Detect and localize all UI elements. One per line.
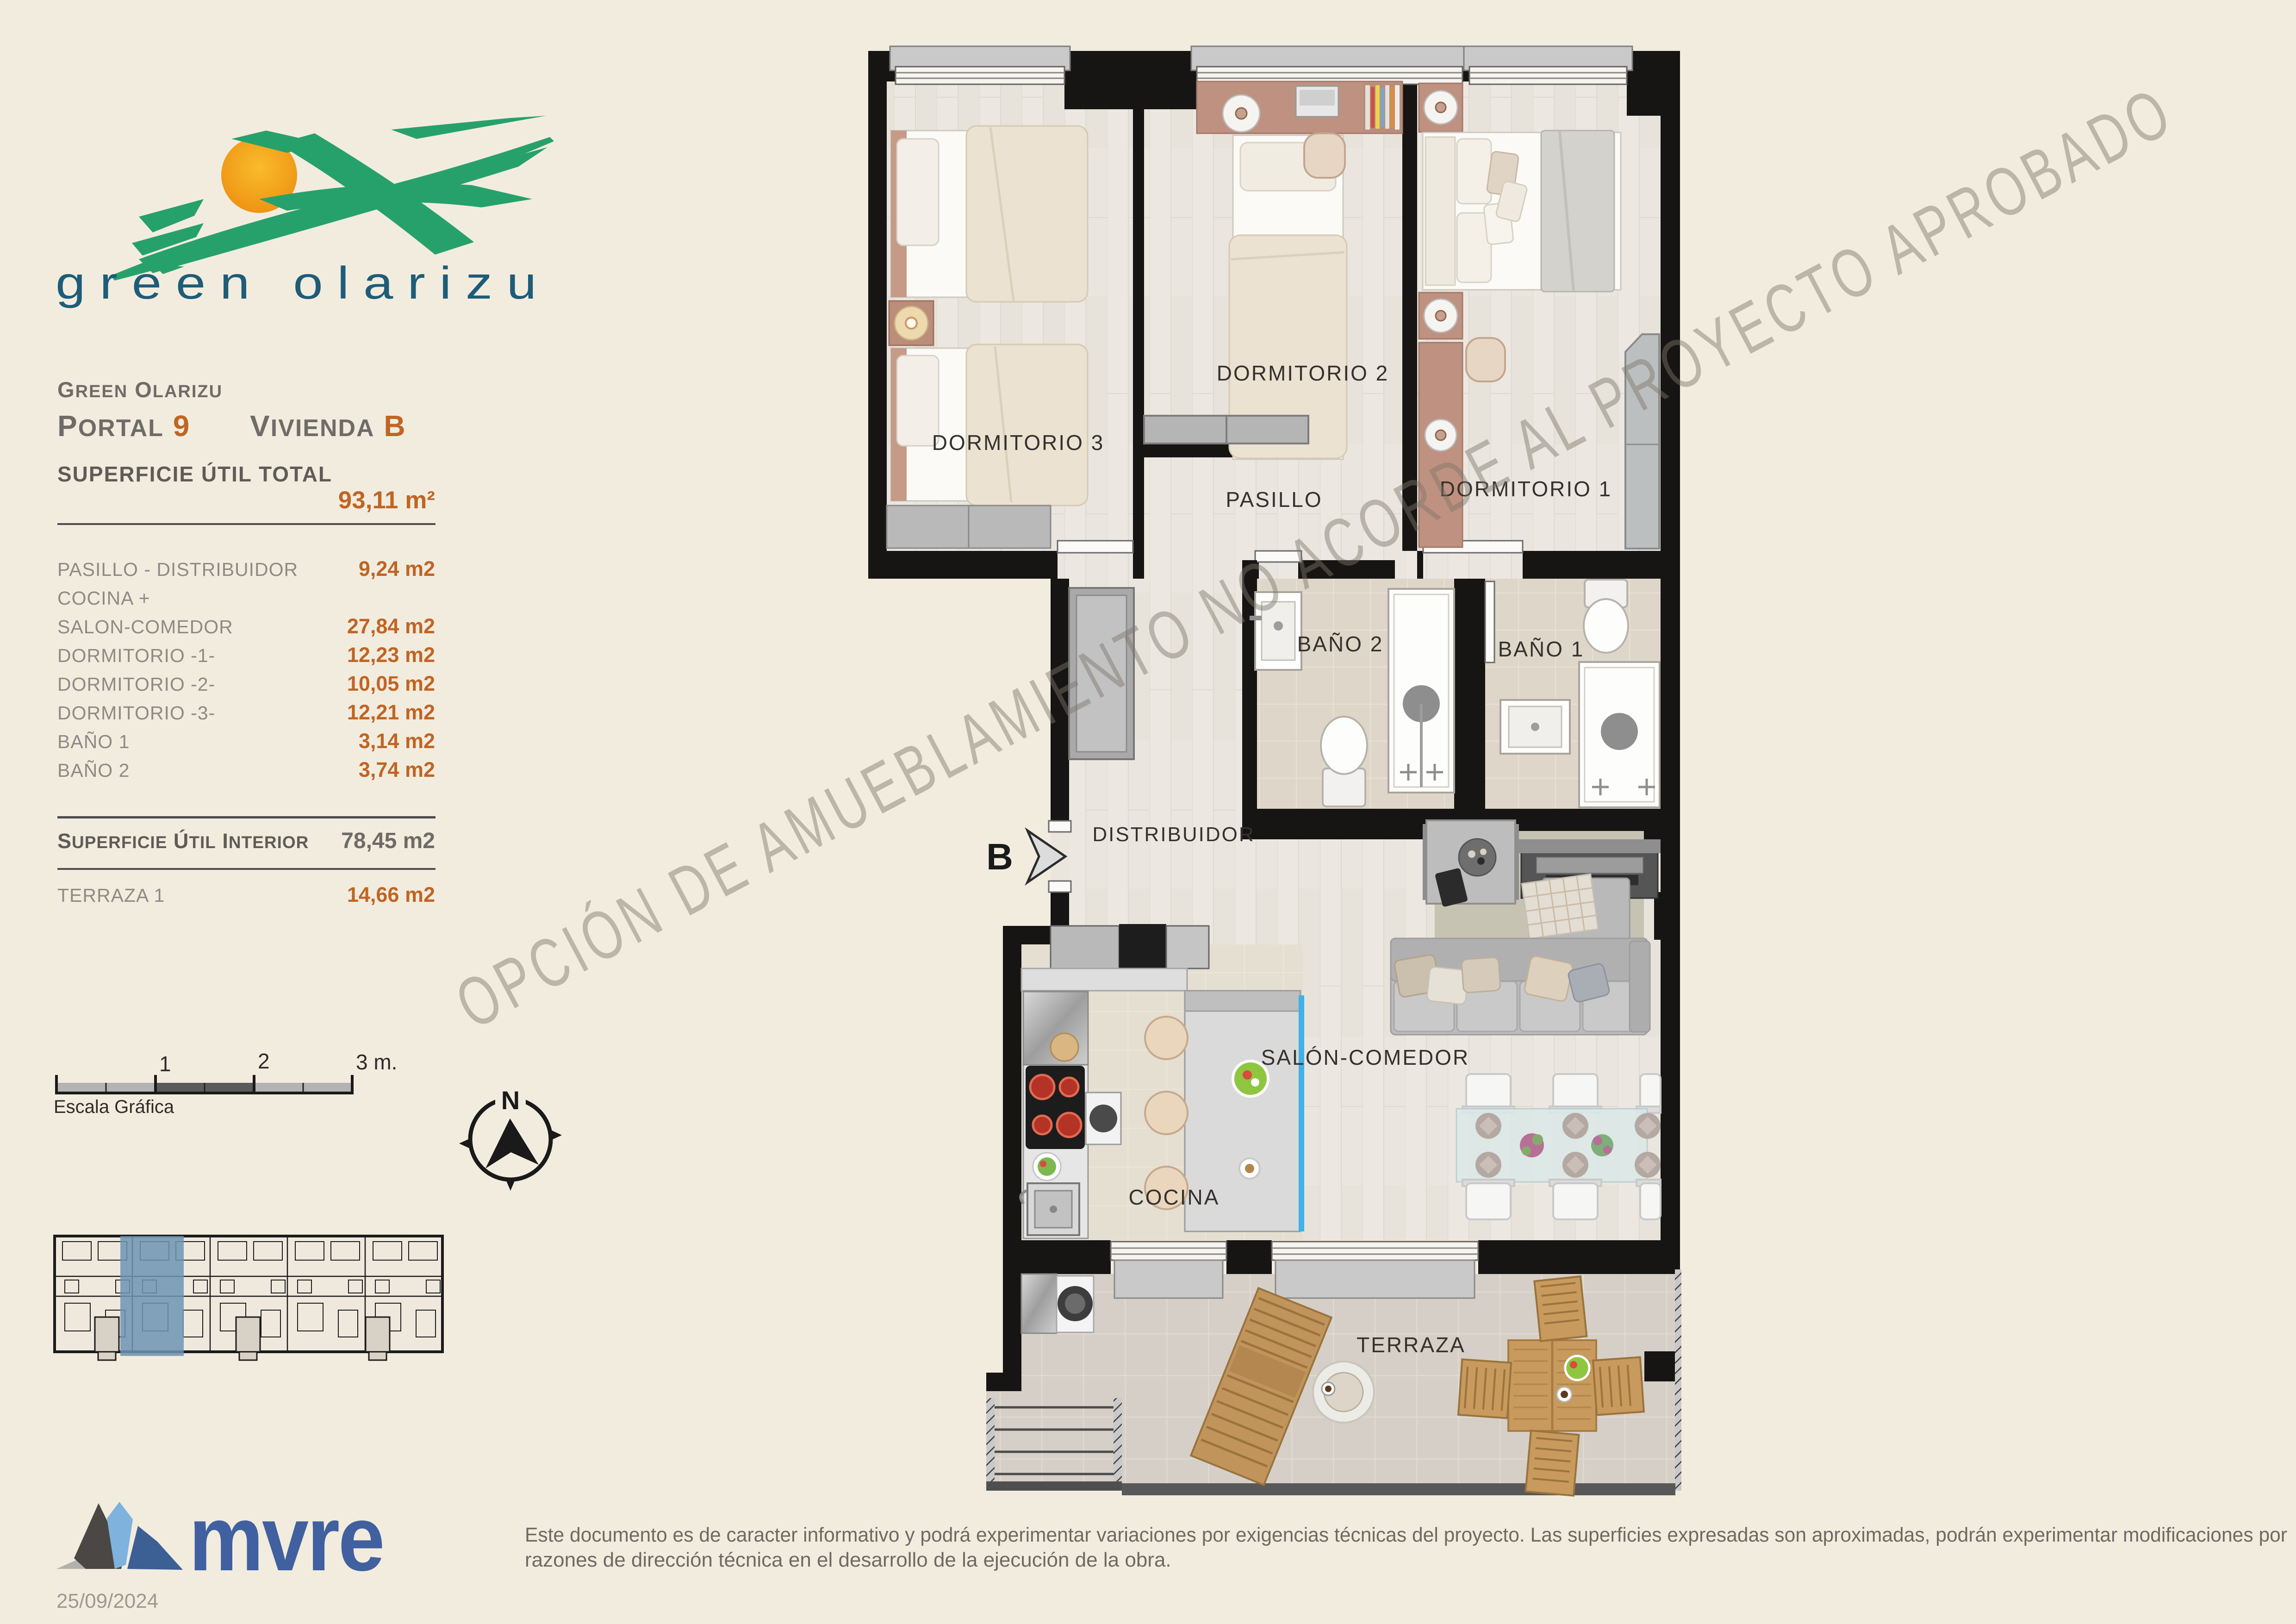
svg-text:BAÑO 2: BAÑO 2 — [57, 760, 130, 781]
svg-text:27,84 m2: 27,84 m2 — [347, 614, 435, 638]
svg-text:DORMITORIO -1-: DORMITORIO -1- — [57, 645, 215, 666]
svg-text:SUPERFICIE ÚTIL INTERIOR: SUPERFICIE ÚTIL INTERIOR — [57, 829, 309, 853]
svg-text:DORMITORIO -2-: DORMITORIO -2- — [57, 674, 215, 695]
svg-text:Escala Gráfica: Escala Gráfica — [54, 1097, 174, 1117]
svg-text:BAÑO 2: BAÑO 2 — [1297, 632, 1384, 656]
svg-text:25/09/2024: 25/09/2024 — [56, 1590, 158, 1612]
svg-text:N: N — [501, 1086, 520, 1115]
svg-text:3,14 m2: 3,14 m2 — [359, 729, 435, 753]
svg-text:Este documento es de caracter: Este documento es de caracter informativ… — [525, 1524, 2287, 1546]
svg-text:3,74 m2: 3,74 m2 — [359, 758, 435, 781]
svg-text:2: 2 — [258, 1049, 270, 1073]
svg-text:PASILLO - DISTRIBUIDOR: PASILLO - DISTRIBUIDOR — [57, 559, 298, 580]
svg-text:COCINA: COCINA — [1129, 1185, 1220, 1209]
svg-text:3 m.: 3 m. — [356, 1050, 397, 1074]
svg-text:9,24 m2: 9,24 m2 — [359, 557, 435, 581]
svg-text:12,21 m2: 12,21 m2 — [347, 700, 435, 724]
svg-text:mvre: mvre — [189, 1487, 383, 1590]
svg-text:BAÑO 1: BAÑO 1 — [1498, 637, 1585, 661]
svg-text:BAÑO 1: BAÑO 1 — [57, 731, 130, 752]
svg-text:93,11 m²: 93,11 m² — [338, 487, 435, 514]
svg-text:TERRAZA 1: TERRAZA 1 — [57, 885, 165, 906]
svg-text:COCINA +: COCINA + — [57, 587, 150, 609]
svg-text:TERRAZA: TERRAZA — [1356, 1333, 1466, 1357]
svg-text:14,66 m2: 14,66 m2 — [347, 883, 435, 906]
svg-text:green olarizu: green olarizu — [56, 257, 551, 308]
svg-text:DORMITORIO 2: DORMITORIO 2 — [1217, 361, 1389, 385]
svg-text:SALON-COMEDOR: SALON-COMEDOR — [57, 616, 233, 637]
svg-text:DORMITORIO -3-: DORMITORIO -3- — [57, 702, 215, 724]
svg-text:razones de dirección técnica e: razones de dirección técnica en el desar… — [525, 1549, 1171, 1571]
svg-text:PASILLO: PASILLO — [1226, 487, 1322, 512]
svg-text:SALÓN-COMEDOR: SALÓN-COMEDOR — [1261, 1045, 1469, 1069]
svg-text:10,05 m2: 10,05 m2 — [347, 672, 435, 695]
svg-text:B: B — [986, 836, 1013, 877]
svg-text:DISTRIBUIDOR: DISTRIBUIDOR — [1092, 823, 1255, 846]
svg-text:SUPERFICIE ÚTIL TOTAL: SUPERFICIE ÚTIL TOTAL — [57, 462, 332, 486]
svg-text:1: 1 — [159, 1052, 171, 1076]
svg-text:DORMITORIO 3: DORMITORIO 3 — [932, 431, 1105, 455]
svg-text:78,45 m2: 78,45 m2 — [341, 829, 435, 853]
svg-text:12,23 m2: 12,23 m2 — [347, 643, 435, 667]
